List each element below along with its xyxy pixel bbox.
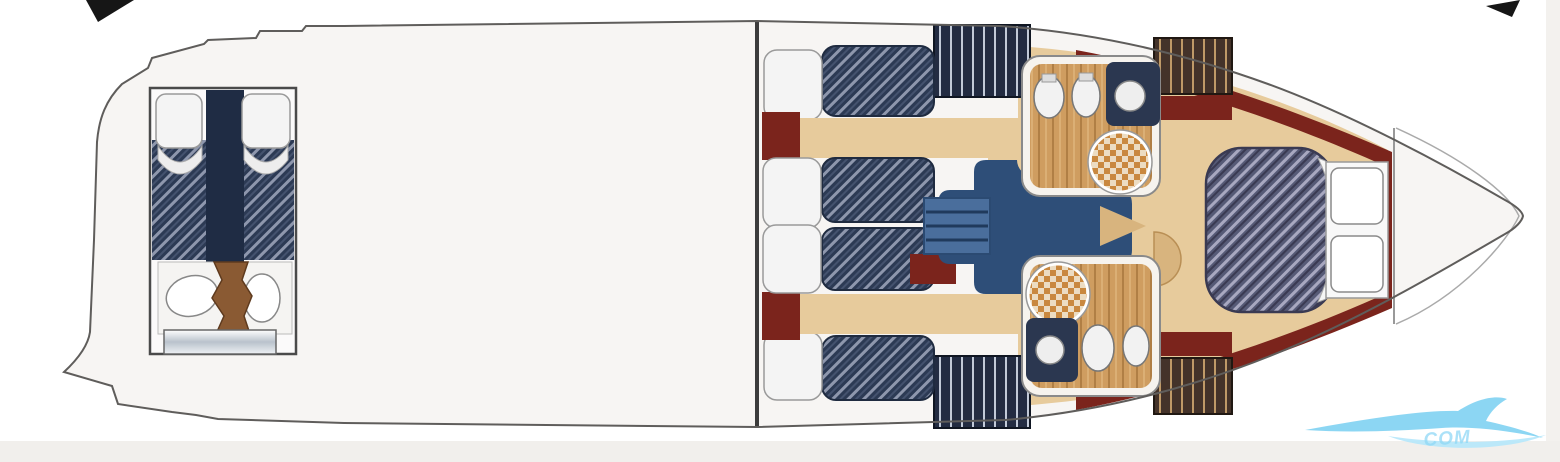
curtain-panel-icon — [1154, 358, 1232, 414]
walkway-floor — [800, 118, 1016, 158]
aft-cabin-divider — [206, 90, 244, 266]
faucet-icon — [1079, 73, 1093, 81]
berth-mattress-inner — [822, 158, 934, 222]
sink-icon — [1123, 326, 1149, 366]
yacht-floorplan-image: COM — [0, 0, 1560, 462]
berth-pillow-inner — [763, 158, 821, 228]
bottom-gray-strip — [0, 441, 1560, 462]
aft-bed-pillow-right — [242, 94, 290, 148]
gallery-arrow-fragment-right[interactable] — [1486, 0, 1520, 17]
maroon-shelf — [1154, 332, 1232, 356]
bow-wardrobe-bottom — [1154, 332, 1232, 414]
round-sink-icon — [1115, 81, 1145, 111]
berth-mattress-outer — [822, 46, 934, 116]
bow-wardrobe-top — [1154, 38, 1232, 120]
floorplan-canvas: COM — [0, 0, 1560, 462]
bow-pillow-1 — [1331, 168, 1383, 224]
head-top — [1022, 56, 1160, 196]
aft-cabin — [150, 88, 296, 354]
head-bottom — [1022, 256, 1160, 396]
maroon-locker — [762, 292, 800, 340]
deck-divider-line — [755, 21, 759, 427]
aft-bed-pillow-left — [156, 94, 202, 148]
shower-tray-checkered — [1090, 132, 1150, 192]
bow-pillow-2 — [1331, 236, 1383, 292]
maroon-shelf — [1154, 96, 1232, 120]
bow-double-bed — [1206, 148, 1334, 312]
berth-pillow-inner — [763, 225, 821, 293]
shower-tray-checkered — [1028, 264, 1088, 324]
curtain-panel-icon — [934, 25, 1030, 97]
maroon-locker — [762, 112, 800, 160]
toilet-icon — [1082, 325, 1114, 371]
walkway-floor — [800, 294, 1016, 334]
curtain-panel-icon — [1154, 38, 1232, 94]
berth-pillow-outer — [764, 50, 822, 120]
round-sink-icon — [1036, 336, 1064, 364]
gallery-arrow-fragment-left[interactable] — [86, 0, 134, 22]
watermark-text: COM — [1423, 427, 1472, 451]
aft-step-bar — [164, 330, 276, 354]
right-gray-strip — [1546, 0, 1560, 441]
curtain-panel-icon — [934, 356, 1030, 428]
faucet-icon — [1042, 74, 1056, 82]
berth-pillow-outer — [764, 332, 822, 400]
companionway-steps — [924, 198, 990, 254]
berth-mattress-outer — [822, 336, 934, 400]
